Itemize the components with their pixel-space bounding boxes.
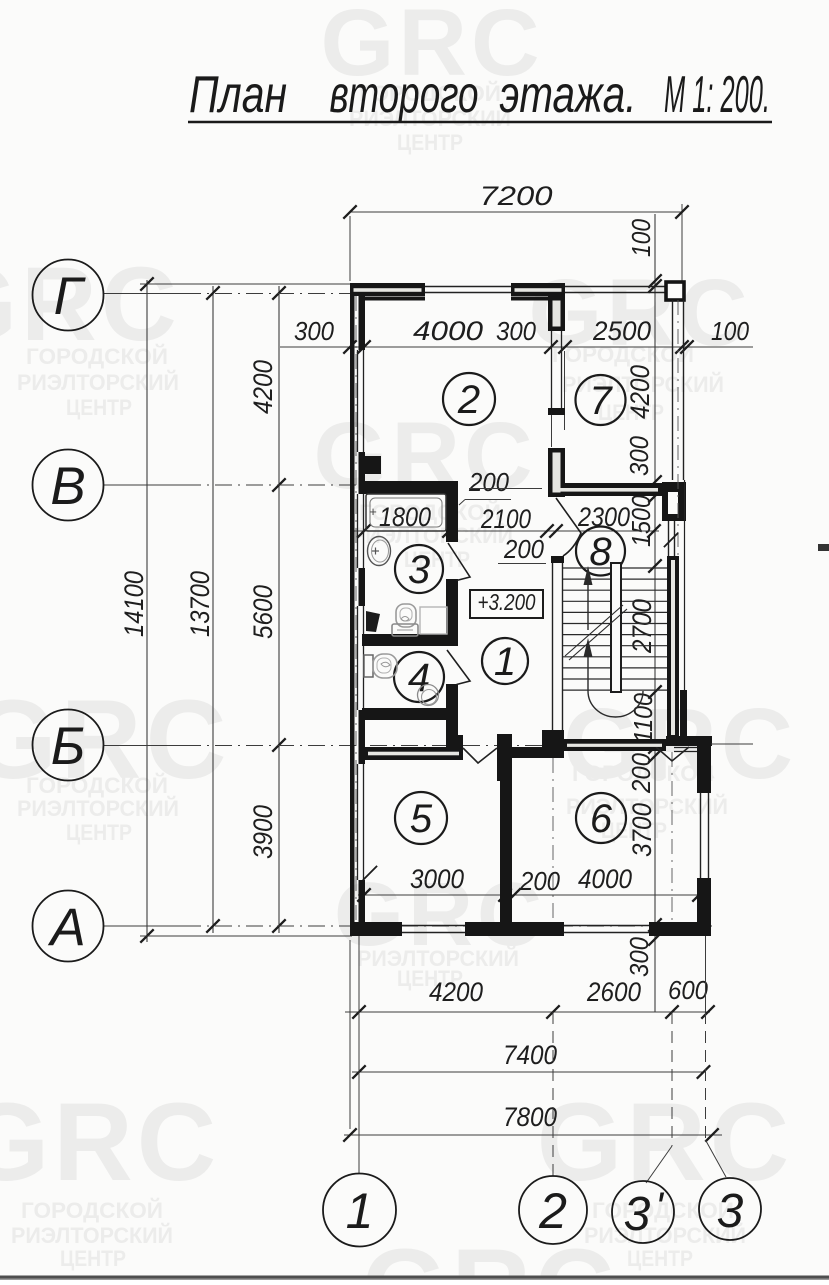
svg-text:второго: второго xyxy=(330,66,479,124)
svg-text:13700: 13700 xyxy=(185,571,215,637)
svg-text:1: 1 xyxy=(494,640,516,684)
svg-text:ЦЕНТР: ЦЕНТР xyxy=(66,820,132,845)
svg-text:РИЭЛТОРСКИЙ: РИЭЛТОРСКИЙ xyxy=(17,370,179,395)
svg-text:М 1: 200.: М 1: 200. xyxy=(664,66,770,124)
svg-text:7200: 7200 xyxy=(480,181,553,211)
svg-text:РИЭЛТОРСКИЙ: РИЭЛТОРСКИЙ xyxy=(11,1223,173,1248)
svg-text:+: + xyxy=(369,504,377,519)
svg-text:14100: 14100 xyxy=(119,571,149,637)
svg-text:300: 300 xyxy=(496,316,536,346)
svg-text:В: В xyxy=(50,457,85,516)
svg-text:7800: 7800 xyxy=(503,1102,557,1132)
svg-text:GRC: GRC xyxy=(537,1081,793,1204)
svg-text:РИЭЛТОРСКИЙ: РИЭЛТОРСКИЙ xyxy=(17,796,179,821)
svg-text:1500: 1500 xyxy=(626,495,656,547)
svg-text:1: 1 xyxy=(346,1183,374,1239)
svg-text:300: 300 xyxy=(294,316,334,346)
svg-text:3: 3 xyxy=(717,1185,744,1238)
svg-text:4200: 4200 xyxy=(248,360,278,414)
svg-text:2100: 2100 xyxy=(480,504,531,534)
svg-text:ЦЕНТР: ЦЕНТР xyxy=(60,1246,126,1271)
svg-text:GRC: GRC xyxy=(362,1227,618,1280)
svg-text:GRC: GRC xyxy=(0,1081,220,1204)
svg-text:4200: 4200 xyxy=(625,365,655,419)
svg-text:3: 3 xyxy=(408,548,430,592)
svg-text:600: 600 xyxy=(668,975,708,1005)
svg-text:2500: 2500 xyxy=(592,316,651,346)
svg-text:1100: 1100 xyxy=(628,693,658,743)
svg-text:300: 300 xyxy=(624,937,654,977)
svg-text:3900: 3900 xyxy=(248,805,278,859)
svg-text:5: 5 xyxy=(410,797,433,841)
svg-text:300: 300 xyxy=(624,436,654,476)
svg-text:ГОРОДСКОЙ: ГОРОДСКОЙ xyxy=(21,1198,163,1223)
svg-text:ЦЕНТР: ЦЕНТР xyxy=(627,1246,693,1271)
svg-text:План: План xyxy=(189,66,287,124)
svg-text:2: 2 xyxy=(457,378,480,422)
svg-text:ЦЕНТР: ЦЕНТР xyxy=(397,130,463,155)
svg-text:+3.200: +3.200 xyxy=(478,589,536,615)
svg-text:5600: 5600 xyxy=(248,585,278,639)
svg-text:2: 2 xyxy=(538,1183,567,1239)
svg-text:200: 200 xyxy=(626,753,656,794)
svg-text:этажа.: этажа. xyxy=(500,66,637,124)
svg-text:3000: 3000 xyxy=(410,864,464,894)
svg-text:100: 100 xyxy=(626,219,656,257)
svg-text:6: 6 xyxy=(590,797,613,841)
svg-text:200: 200 xyxy=(503,534,544,564)
svg-text:А: А xyxy=(47,898,85,957)
svg-text:3: 3 xyxy=(624,1188,651,1241)
svg-text:3700: 3700 xyxy=(627,803,657,857)
svg-text:100: 100 xyxy=(711,316,749,346)
svg-text:ЦЕНТР: ЦЕНТР xyxy=(66,395,132,420)
svg-text:4: 4 xyxy=(408,656,430,700)
svg-text:4000: 4000 xyxy=(578,864,632,894)
svg-text:2600: 2600 xyxy=(586,977,641,1007)
svg-text:200: 200 xyxy=(519,866,560,896)
svg-text:Б: Б xyxy=(51,717,86,776)
svg-text:4000: 4000 xyxy=(413,316,483,346)
svg-text:7400: 7400 xyxy=(503,1040,557,1070)
svg-text:4200: 4200 xyxy=(429,977,483,1007)
svg-text:7: 7 xyxy=(589,379,613,423)
svg-text:200: 200 xyxy=(468,467,509,497)
svg-text:Г: Г xyxy=(54,267,87,326)
